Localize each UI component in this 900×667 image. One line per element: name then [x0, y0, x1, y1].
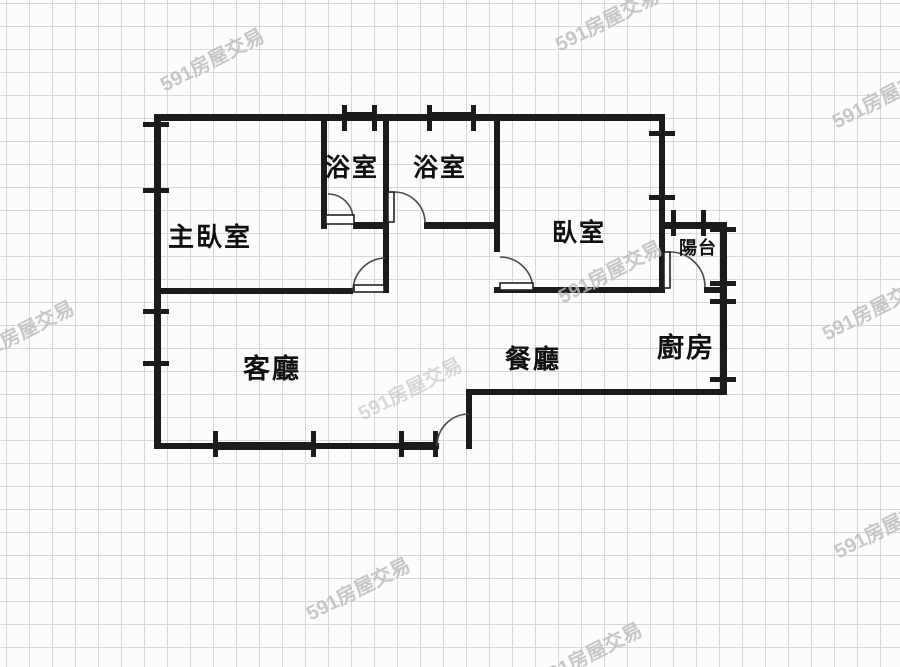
room-label-master-bedroom: 主臥室: [168, 224, 252, 250]
room-label-balcony: 陽台: [679, 239, 717, 257]
window-tick: [649, 195, 675, 200]
wall-entry-step: [466, 392, 472, 449]
window-tick: [710, 281, 736, 286]
window-bar: [401, 442, 435, 450]
wall-dining-kitchen-bottom: [466, 389, 727, 395]
window-tick: [143, 122, 169, 127]
wall-bath2-right: [494, 114, 500, 252]
room-label-living-room: 客廳: [243, 356, 301, 383]
door-panel-bathroom2: [388, 192, 394, 222]
window-tick: [143, 309, 169, 314]
door-arc-bathroom2: [394, 192, 425, 223]
wall-bath-bottom-a: [353, 222, 389, 229]
window-tick: [710, 377, 736, 382]
wall-bath-bottom-b: [424, 222, 500, 229]
window-bar: [344, 112, 376, 121]
floor-plan: 主臥室 浴室 浴室 臥室 陽台 客廳 餐廳 廚房 591房屋交易 591房屋交易…: [0, 0, 900, 667]
room-label-bathroom-2: 浴室: [413, 156, 467, 181]
wall-right: [720, 222, 727, 395]
door-panel-balcony: [664, 252, 670, 288]
window-bar: [215, 442, 313, 450]
window-tick: [710, 299, 736, 304]
room-label-kitchen: 廚房: [657, 335, 715, 362]
door-panel-bathroom1: [326, 215, 354, 224]
door-panel-bedroom: [500, 283, 533, 290]
wall-master-bottom: [154, 288, 353, 294]
door-panel-master-bedroom: [354, 285, 384, 292]
floor-plan-drawing: [0, 0, 900, 667]
room-label-bathroom-1: 浴室: [325, 156, 379, 181]
room-label-dining-room: 餐廳: [505, 346, 561, 372]
window-tick: [143, 361, 169, 366]
window-bar: [429, 112, 473, 121]
wall-left: [154, 114, 161, 449]
wall-top: [154, 114, 663, 121]
door-arc-entrance: [437, 414, 469, 446]
window-tick: [671, 210, 676, 236]
wall-balcony-bottom-nub: [704, 287, 727, 293]
window-tick: [649, 131, 675, 136]
window-tick: [701, 210, 706, 236]
room-label-bedroom: 臥室: [552, 221, 606, 246]
window-tick: [143, 188, 169, 193]
window-tick: [710, 227, 736, 232]
